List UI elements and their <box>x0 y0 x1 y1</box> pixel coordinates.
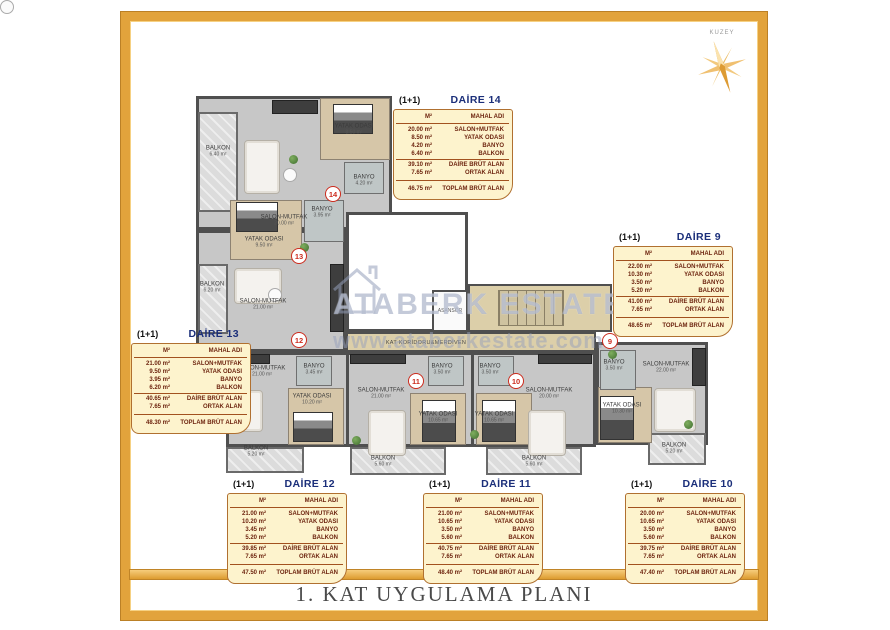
room-cell: DAİRE BRÜT ALAN <box>652 298 729 306</box>
area-table-daire-13: (1+1) DAİRE 13 M²MAHAL ADI 21.00 m²SALON… <box>131 328 251 434</box>
room-label-yatak-11: YATAK ODASI10.65 m² <box>419 412 458 425</box>
stairs <box>498 290 564 326</box>
room-cell: BANYO <box>652 279 729 287</box>
total-area-cell: 48.30 m² <box>134 419 170 428</box>
room-label-yatak-10: YATAK ODASI10.65 m² <box>475 412 514 425</box>
area-cell: 20.00 m² <box>628 510 664 518</box>
room-label-banyo-10: BANYO3.50 m² <box>479 364 500 377</box>
room-cell: DAİRE BRÜT ALAN <box>462 545 539 553</box>
unit-badge-14: 14 <box>325 186 341 202</box>
north-label: KUZEY <box>692 30 752 36</box>
col-header-area: M² <box>628 497 664 505</box>
table-title: (1+1) DAİRE 11 <box>423 478 543 493</box>
room-cell: BALKON <box>266 534 343 542</box>
room-cell: ORTAK ALAN <box>266 553 343 561</box>
area-cell: 21.00 m² <box>426 510 462 518</box>
total-label-cell: TOPLAM BRÜT ALAN <box>170 419 247 428</box>
unit-badge-11: 11 <box>408 373 424 389</box>
table-title: (1+1) DAİRE 12 <box>227 478 347 493</box>
room-label-salon-11: SALON-MUTFAK21.00 m² <box>358 388 405 401</box>
area-table-daire-9: (1+1) DAİRE 9 M²MAHAL ADI 22.00 m²SALON+… <box>613 231 733 337</box>
area-cell: 5.60 m² <box>628 534 664 542</box>
unit-badge-12: 12 <box>291 332 307 348</box>
total-area-cell: 48.40 m² <box>426 569 462 578</box>
total-label-cell: TOPLAM BRÜT ALAN <box>652 322 729 331</box>
floor-plan-page: KUZEY ASANSÖR KAT KORİDORU&MERDİVEN <box>0 0 890 630</box>
area-cell: 10.65 m² <box>628 518 664 526</box>
unit-type: (1+1) <box>631 479 652 489</box>
area-cell: 5.60 m² <box>426 534 462 542</box>
total-area-cell: 47.50 m² <box>230 569 266 578</box>
area-cell: 39.85 m² <box>230 545 266 553</box>
area-cell: 5.20 m² <box>616 287 652 295</box>
area-cell: 10.65 m² <box>426 518 462 526</box>
unit-name: DAİRE 11 <box>481 478 531 490</box>
area-cell: 40.65 m² <box>134 395 170 403</box>
room-cell: ORTAK ALAN <box>652 306 729 314</box>
compass-star-icon <box>695 37 749 97</box>
col-header-area: M² <box>396 113 432 121</box>
table-title: (1+1) DAİRE 10 <box>625 478 745 493</box>
room-cell: DAİRE BRÜT ALAN <box>170 395 247 403</box>
total-area-cell: 47.40 m² <box>628 569 664 578</box>
area-cell: 7.65 m² <box>628 553 664 561</box>
room-cell: ORTAK ALAN <box>664 553 741 561</box>
balcony-14 <box>198 112 238 212</box>
page-title: 1. KAT UYGULAMA PLANI <box>130 582 758 607</box>
area-cell: 7.65 m² <box>134 403 170 411</box>
unit-badge-10: 10 <box>508 373 524 389</box>
col-header-area: M² <box>230 497 266 505</box>
area-cell: 6.20 m² <box>134 384 170 392</box>
area-cell: 4.20 m² <box>396 142 432 150</box>
room-label-balkon-9: BALKON5.20 m² <box>662 443 686 456</box>
total-label-cell: TOPLAM BRÜT ALAN <box>664 569 741 578</box>
room-cell: ORTAK ALAN <box>432 169 509 177</box>
area-cell: 3.50 m² <box>628 526 664 534</box>
area-cell: 7.65 m² <box>396 169 432 177</box>
col-header-area: M² <box>426 497 462 505</box>
room-label-salon-9: SALON-MUTFAK22.00 m² <box>643 362 690 375</box>
table-body: M²MAHAL ADI 21.00 m²SALON+MUTFAK 10.20 m… <box>227 493 347 584</box>
room-cell: BANYO <box>266 526 343 534</box>
area-cell: 3.50 m² <box>616 279 652 287</box>
room-label-yatak-14: YATAK ODASI8.50 m² <box>335 124 374 137</box>
room-cell: BALKON <box>652 287 729 295</box>
unit-name: DAİRE 10 <box>683 478 733 490</box>
coffee-table <box>283 168 297 182</box>
area-cell: 9.50 m² <box>134 368 170 376</box>
table-title: (1+1) DAİRE 13 <box>131 328 251 343</box>
area-cell: 10.20 m² <box>230 518 266 526</box>
unit-type: (1+1) <box>233 479 254 489</box>
room-label-balkon-11: BALKON5.60 m² <box>371 456 395 469</box>
col-header-room: MAHAL ADI <box>652 250 729 258</box>
room-cell: BANYO <box>664 526 741 534</box>
kitchen-counter <box>350 354 406 364</box>
unit-type: (1+1) <box>137 329 158 339</box>
area-table-daire-14: (1+1) DAİRE 14 M²MAHAL ADI 20.00 m²SALON… <box>393 94 513 200</box>
room-label-banyo-14: BANYO4.20 m² <box>353 175 374 188</box>
table-title: (1+1) DAİRE 9 <box>613 231 733 246</box>
table-body: M²MAHAL ADI 20.00 m²SALON+MUTFAK 10.65 m… <box>625 493 745 584</box>
room-cell: YATAK ODASI <box>266 518 343 526</box>
total-area-cell: 46.75 m² <box>396 185 432 194</box>
room-cell: SALON+MUTFAK <box>170 360 247 368</box>
col-header-area: M² <box>134 347 170 355</box>
room-cell: BALKON <box>462 534 539 542</box>
room-cell: YATAK ODASI <box>462 518 539 526</box>
unit-name: DAİRE 13 <box>189 328 239 340</box>
room-cell: BANYO <box>170 376 247 384</box>
total-area-cell: 48.65 m² <box>616 322 652 331</box>
col-header-room: MAHAL ADI <box>170 347 247 355</box>
area-cell: 40.75 m² <box>426 545 462 553</box>
col-header-room: MAHAL ADI <box>664 497 741 505</box>
table-title: (1+1) DAİRE 14 <box>393 94 513 109</box>
area-cell: 8.50 m² <box>396 134 432 142</box>
room-cell: SALON+MUTFAK <box>266 510 343 518</box>
coffee-table <box>0 0 14 14</box>
table-body: M²MAHAL ADI 21.00 m²SALON+MUTFAK 9.50 m²… <box>131 343 251 434</box>
area-cell: 3.50 m² <box>426 526 462 534</box>
area-cell: 21.00 m² <box>230 510 266 518</box>
col-header-room: MAHAL ADI <box>266 497 343 505</box>
unit-type: (1+1) <box>429 479 450 489</box>
room-cell: YATAK ODASI <box>652 271 729 279</box>
area-cell: 7.65 m² <box>616 306 652 314</box>
room-cell: SALON+MUTFAK <box>432 126 509 134</box>
area-cell: 3.45 m² <box>230 526 266 534</box>
room-cell: SALON+MUTFAK <box>652 263 729 271</box>
wall-divider <box>346 352 349 447</box>
area-cell: 10.30 m² <box>616 271 652 279</box>
area-table-daire-11: (1+1) DAİRE 11 M²MAHAL ADI 21.00 m²SALON… <box>423 478 543 584</box>
room-label-salon-14: SALON-MUTFAK20.00 m² <box>261 215 308 228</box>
corridor <box>346 332 596 352</box>
unit-badge-13: 13 <box>291 248 307 264</box>
plant <box>470 430 479 439</box>
room-label-salon-13: SALON-MUTFAK21.00 m² <box>240 299 287 312</box>
room-label-balkon-12: BALKON5.20 m² <box>244 446 268 459</box>
room-cell: ORTAK ALAN <box>170 403 247 411</box>
plant <box>289 155 298 164</box>
total-label-cell: TOPLAM BRÜT ALAN <box>432 185 509 194</box>
unit-type: (1+1) <box>619 232 640 242</box>
area-table-daire-12: (1+1) DAİRE 12 M²MAHAL ADI 21.00 m²SALON… <box>227 478 347 584</box>
area-cell: 39.75 m² <box>628 545 664 553</box>
table-body: M²MAHAL ADI 20.00 m²SALON+MUTFAK 8.50 m²… <box>393 109 513 200</box>
area-table-daire-10: (1+1) DAİRE 10 M²MAHAL ADI 20.00 m²SALON… <box>625 478 745 584</box>
room-cell: YATAK ODASI <box>664 518 741 526</box>
kitchen-counter <box>692 348 706 386</box>
corridor-label: KAT KORİDORU&MERDİVEN <box>386 340 466 346</box>
unit-name: DAİRE 14 <box>451 94 501 106</box>
room-cell: BANYO <box>432 142 509 150</box>
room-cell: BALKON <box>664 534 741 542</box>
balcony-13 <box>198 264 228 334</box>
room-cell: BANYO <box>462 526 539 534</box>
unit-name: DAİRE 9 <box>677 231 721 243</box>
elevator: ASANSÖR <box>432 290 468 332</box>
room-label-balkon-14: BALKON6.40 m² <box>206 146 230 159</box>
unit-name: DAİRE 12 <box>285 478 335 490</box>
room-label-balkon-13: BALKON6.20 m² <box>200 282 224 295</box>
plant <box>684 420 693 429</box>
room-label-banyo-11: BANYO3.50 m² <box>431 364 452 377</box>
room-cell: DAİRE BRÜT ALAN <box>664 545 741 553</box>
sofa <box>244 140 280 194</box>
total-label-cell: TOPLAM BRÜT ALAN <box>266 569 343 578</box>
area-cell: 6.40 m² <box>396 150 432 158</box>
sofa <box>528 410 566 456</box>
kitchen-counter <box>538 354 592 364</box>
room-label-balkon-10: BALKON5.60 m² <box>522 456 546 469</box>
plant <box>608 350 617 359</box>
room-label-yatak-13: YATAK ODASI9.50 m² <box>245 237 284 250</box>
area-cell: 39.10 m² <box>396 161 432 169</box>
area-cell: 3.95 m² <box>134 376 170 384</box>
area-cell: 21.00 m² <box>134 360 170 368</box>
col-header-room: MAHAL ADI <box>462 497 539 505</box>
room-label-banyo-12: BANYO3.45 m² <box>303 364 324 377</box>
area-cell: 7.65 m² <box>230 553 266 561</box>
room-label-yatak-9: YATAK ODASI10.30 m² <box>603 403 642 416</box>
room-cell: SALON+MUTFAK <box>462 510 539 518</box>
area-cell: 22.00 m² <box>616 263 652 271</box>
room-cell: ORTAK ALAN <box>462 553 539 561</box>
plant <box>352 436 361 445</box>
col-header-room: MAHAL ADI <box>432 113 509 121</box>
col-header-area: M² <box>616 250 652 258</box>
sofa <box>368 410 406 456</box>
kitchen-counter <box>272 100 318 114</box>
room-cell: DAİRE BRÜT ALAN <box>432 161 509 169</box>
room-cell: BALKON <box>432 150 509 158</box>
area-cell: 41.00 m² <box>616 298 652 306</box>
total-label-cell: TOPLAM BRÜT ALAN <box>462 569 539 578</box>
room-label-salon-10: SALON-MUTFAK20.00 m² <box>526 388 573 401</box>
unit-type: (1+1) <box>399 95 420 105</box>
room-label-banyo-13: BANYO3.95 m² <box>311 207 332 220</box>
room-label-yatak-12: YATAK ODASI10.20 m² <box>293 394 332 407</box>
area-cell: 5.20 m² <box>230 534 266 542</box>
room-cell: BALKON <box>170 384 247 392</box>
room-cell: DAİRE BRÜT ALAN <box>266 545 343 553</box>
compass: KUZEY <box>692 30 752 110</box>
room-cell: YATAK ODASI <box>432 134 509 142</box>
room-cell: YATAK ODASI <box>170 368 247 376</box>
area-cell: 20.00 m² <box>396 126 432 134</box>
bed <box>293 412 333 442</box>
room-label-banyo-9: BANYO3.50 m² <box>603 360 624 373</box>
room-cell: SALON+MUTFAK <box>664 510 741 518</box>
table-body: M²MAHAL ADI 22.00 m²SALON+MUTFAK 10.30 m… <box>613 246 733 337</box>
table-body: M²MAHAL ADI 21.00 m²SALON+MUTFAK 10.65 m… <box>423 493 543 584</box>
area-cell: 7.65 m² <box>426 553 462 561</box>
kitchen-counter <box>330 264 344 332</box>
